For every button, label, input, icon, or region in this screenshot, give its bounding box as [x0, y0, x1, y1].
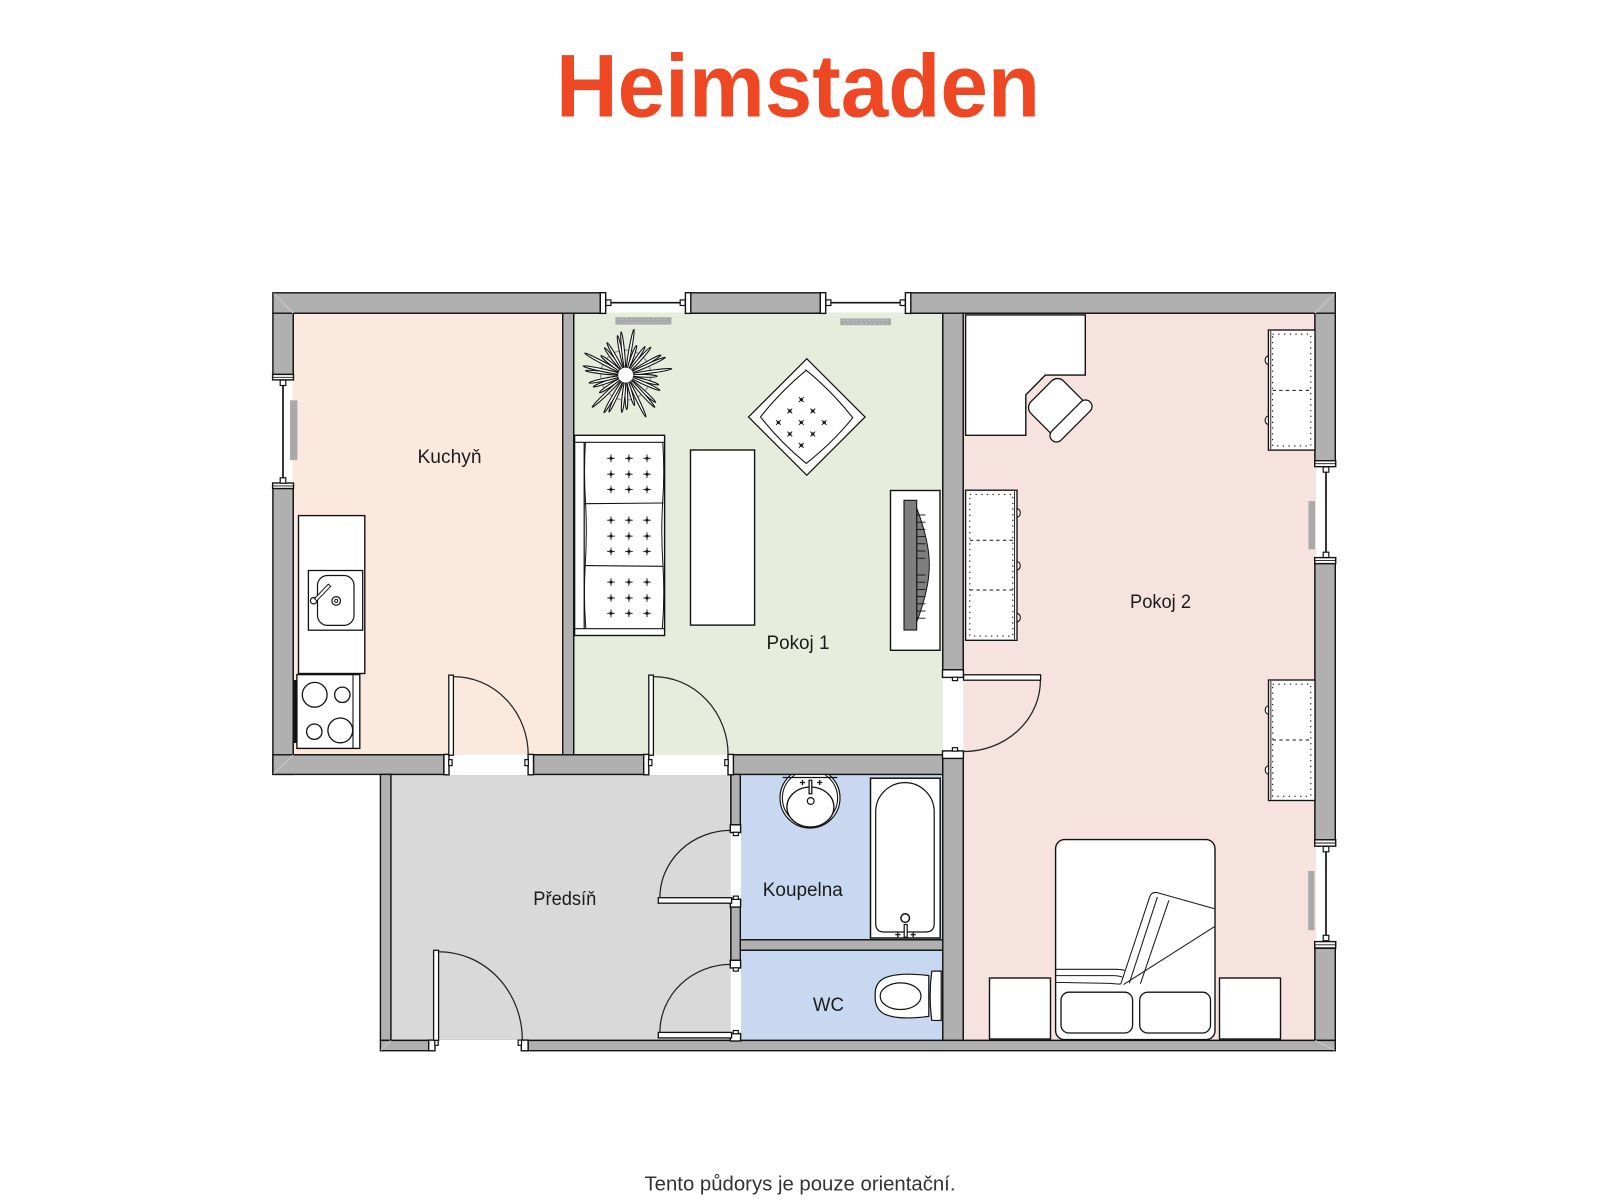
svg-text:Kuchyň: Kuchyň — [418, 447, 482, 468]
svg-text:Tento půdorys je pouze orienta: Tento půdorys je pouze orientační. — [645, 1173, 956, 1196]
svg-text:WC: WC — [813, 995, 844, 1016]
svg-text:Heimstaden: Heimstaden — [556, 36, 1040, 136]
svg-text:Předsíň: Předsíň — [533, 889, 596, 910]
svg-text:Pokoj 2: Pokoj 2 — [1130, 592, 1191, 613]
svg-text:Koupelna: Koupelna — [763, 880, 843, 901]
svg-text:Pokoj 1: Pokoj 1 — [767, 633, 830, 654]
